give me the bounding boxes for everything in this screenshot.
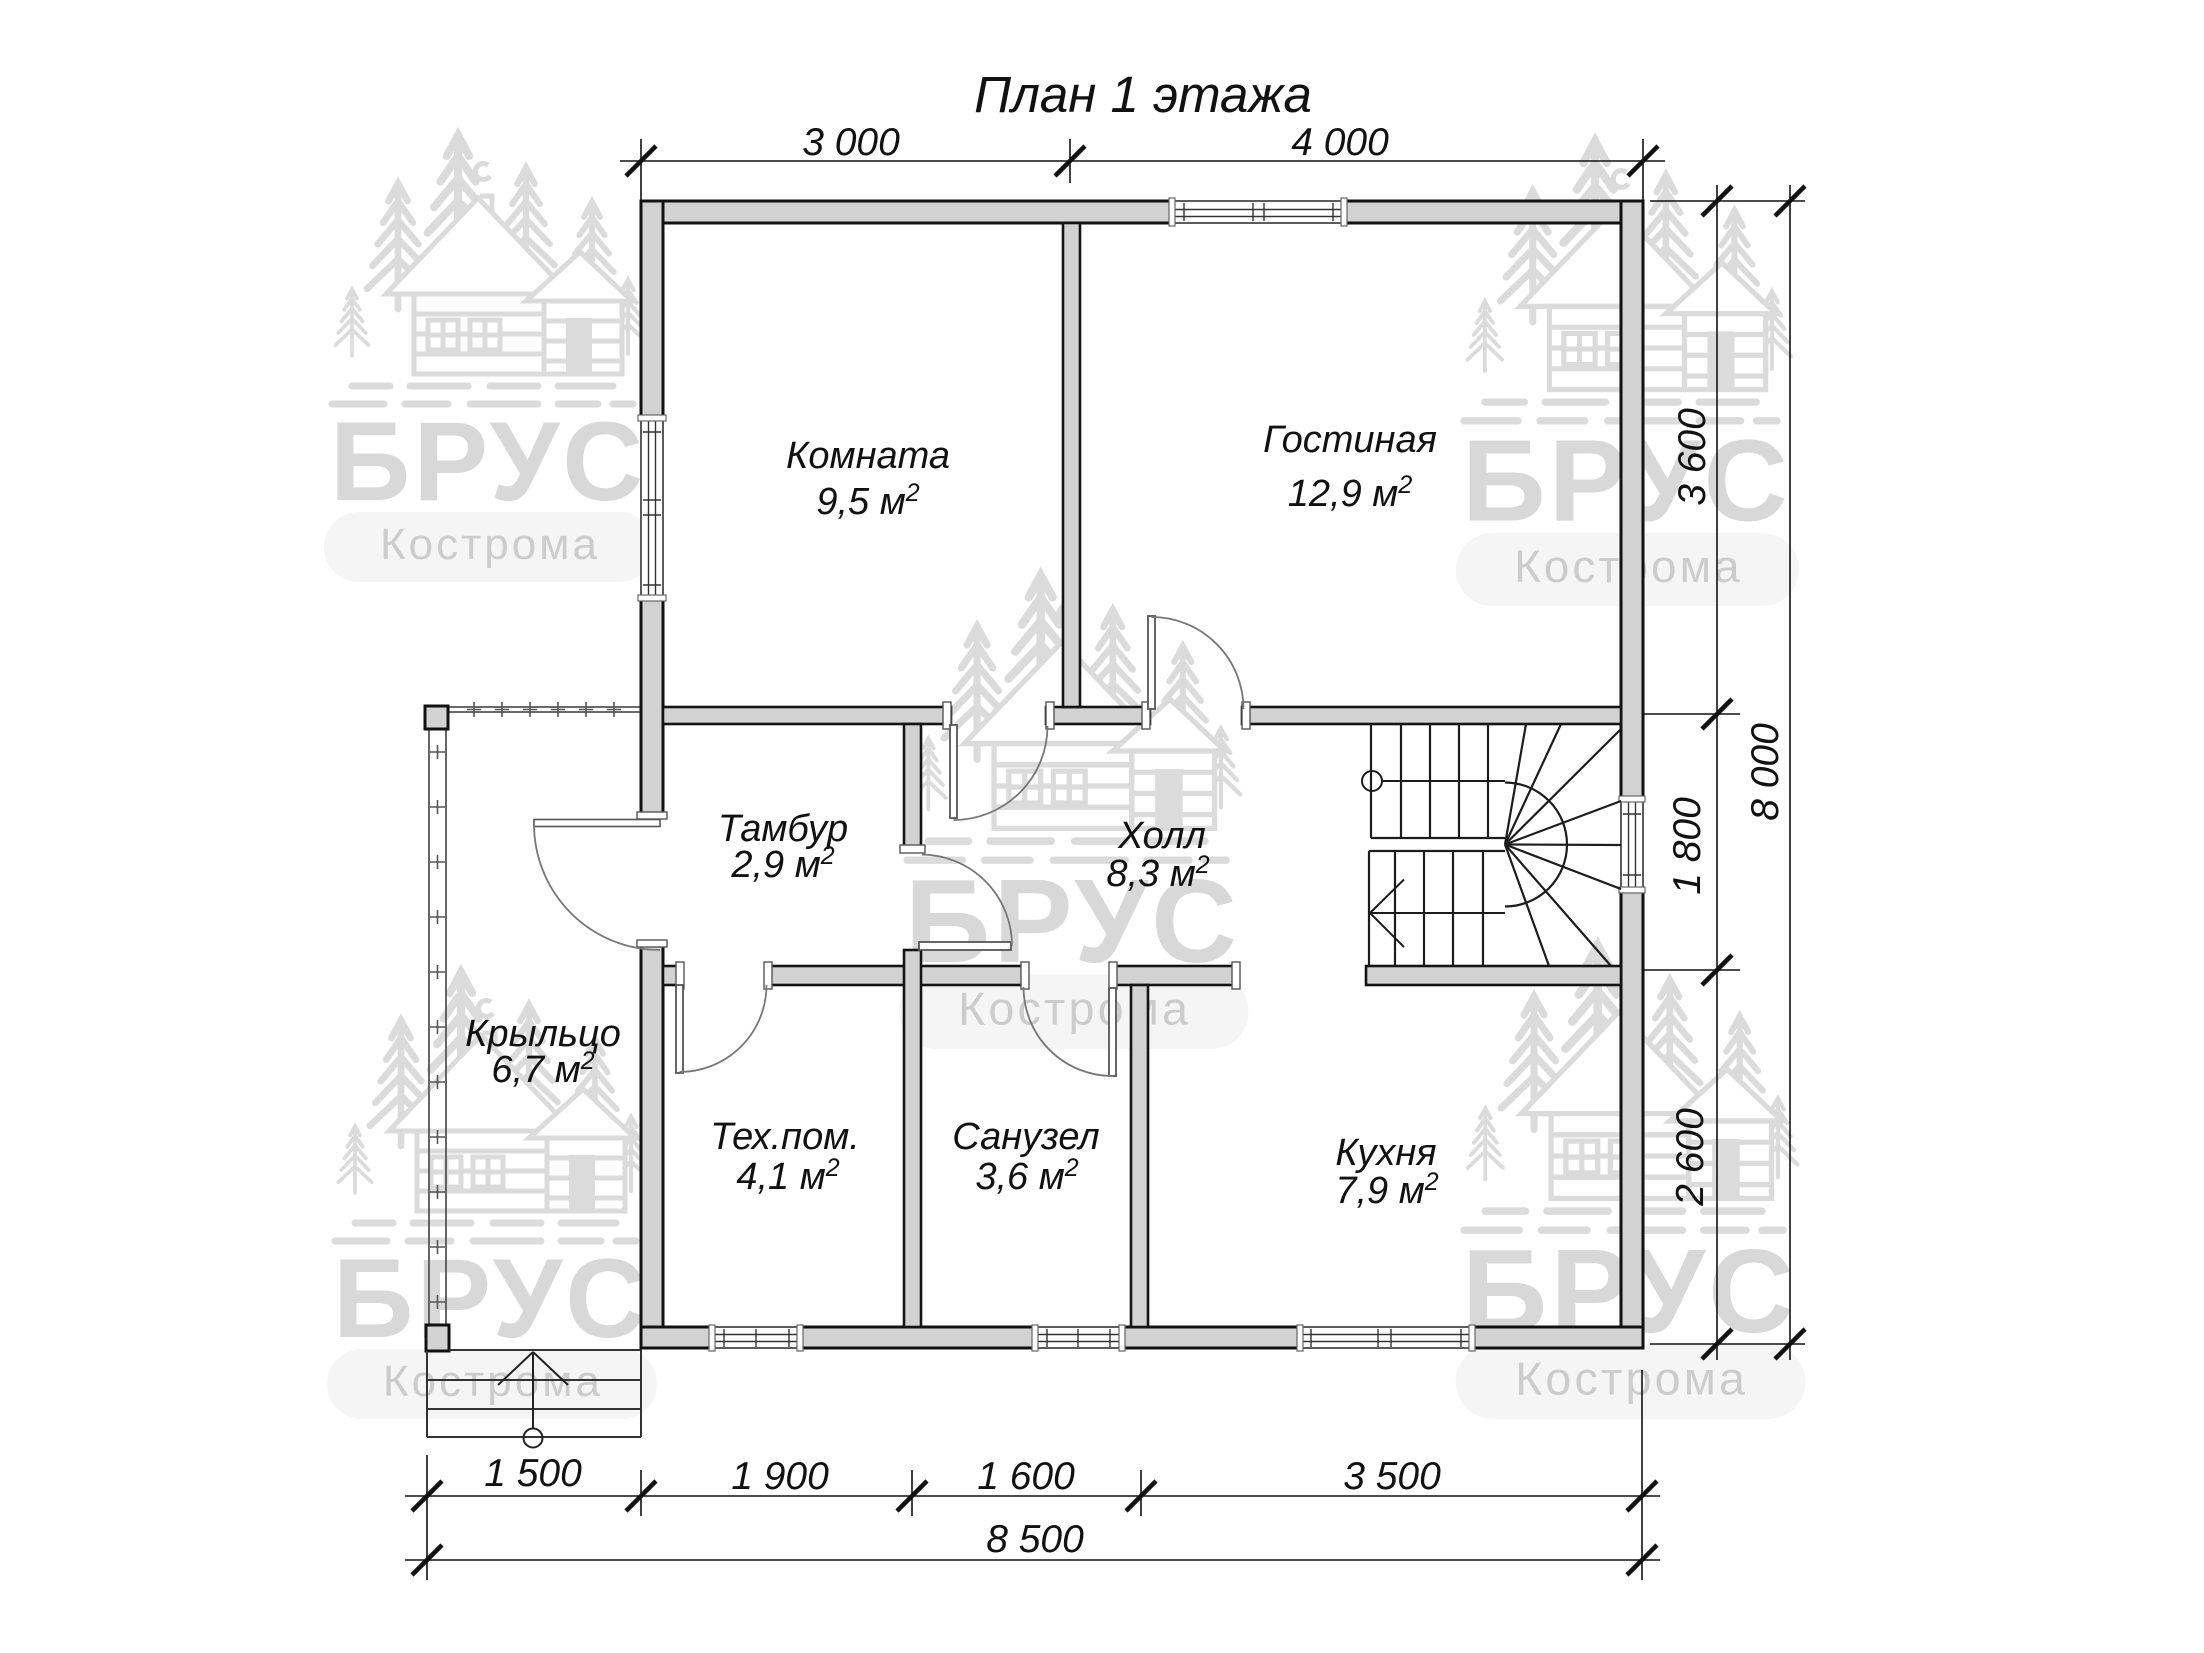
svg-text:9,5 м2: 9,5 м2 bbox=[816, 479, 919, 523]
svg-text:1 500: 1 500 bbox=[484, 1452, 582, 1495]
svg-text:Тех.пом.: Тех.пом. bbox=[710, 1116, 860, 1158]
svg-text:8 000: 8 000 bbox=[1744, 723, 1787, 821]
svg-text:3,6 м2: 3,6 м2 bbox=[975, 1154, 1078, 1198]
svg-text:1 600: 1 600 bbox=[977, 1455, 1075, 1498]
svg-text:Комната: Комната bbox=[786, 435, 950, 477]
svg-text:7,9 м2: 7,9 м2 bbox=[1335, 1168, 1438, 1212]
svg-text:3 600: 3 600 bbox=[1671, 408, 1714, 506]
svg-text:3 000: 3 000 bbox=[802, 121, 900, 164]
svg-text:План 1 этажа: План 1 этажа bbox=[974, 66, 1312, 123]
svg-text:4,1 м2: 4,1 м2 bbox=[736, 1154, 839, 1198]
svg-text:Санузел: Санузел bbox=[952, 1116, 1099, 1158]
svg-text:8 500: 8 500 bbox=[986, 1518, 1084, 1561]
svg-text:Гостиная: Гостиная bbox=[1263, 419, 1437, 461]
svg-text:3 500: 3 500 bbox=[1343, 1455, 1441, 1498]
svg-text:6,7 м2: 6,7 м2 bbox=[491, 1047, 594, 1091]
svg-text:1 900: 1 900 bbox=[731, 1455, 829, 1498]
svg-text:4 000: 4 000 bbox=[1291, 121, 1389, 164]
svg-text:8,3 м2: 8,3 м2 bbox=[1106, 851, 1209, 895]
svg-text:1 800: 1 800 bbox=[1666, 797, 1709, 895]
svg-text:2 600: 2 600 bbox=[1669, 1108, 1712, 1207]
svg-text:12,9 м2: 12,9 м2 bbox=[1288, 471, 1413, 515]
svg-text:Кухня: Кухня bbox=[1335, 1132, 1436, 1174]
svg-text:2,9 м2: 2,9 м2 bbox=[730, 842, 834, 886]
svg-text:Холл: Холл bbox=[1117, 815, 1206, 857]
